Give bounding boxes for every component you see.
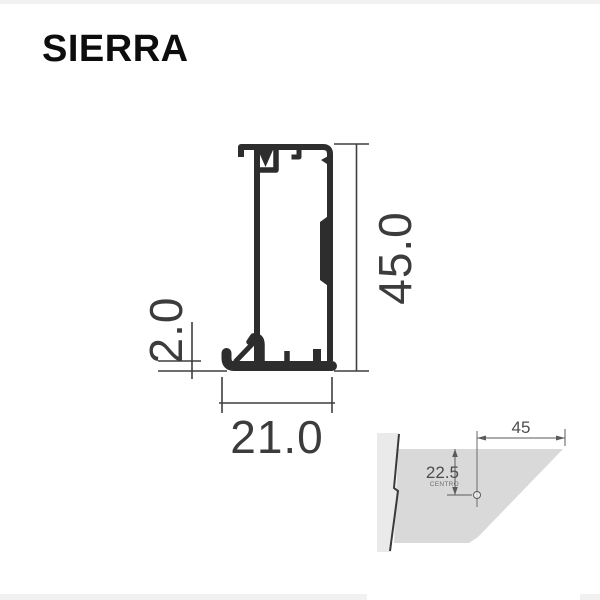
arrow-right — [556, 436, 565, 441]
dimension-width — [219, 377, 335, 413]
drawing-page: SIERRA — [0, 0, 600, 600]
detail-center-label: 22.5 — [426, 463, 459, 482]
profile-cross-section: 45.0 2.0 21.0 — [140, 144, 421, 463]
profile-right-wall-bulge — [320, 214, 331, 288]
detail-length-label: 45 — [512, 418, 531, 437]
dimension-height-label: 45.0 — [369, 211, 421, 305]
miter-detail-inset: 45 22.5 CENTRO — [377, 418, 565, 552]
dimension-thickness-label: 2.0 — [140, 297, 192, 364]
profile-inner-bump — [321, 155, 330, 166]
dimension-width-label: 21.0 — [230, 411, 324, 463]
arrow-left — [477, 436, 486, 441]
profile-v-notch — [258, 150, 273, 167]
drill-center-marker — [474, 492, 481, 499]
detail-center-caption: CENTRO — [430, 481, 459, 488]
technical-drawing-canvas: 45.0 2.0 21.0 — [0, 0, 600, 600]
profile-bottom-right-tab — [313, 349, 321, 363]
dimension-height — [334, 144, 369, 371]
